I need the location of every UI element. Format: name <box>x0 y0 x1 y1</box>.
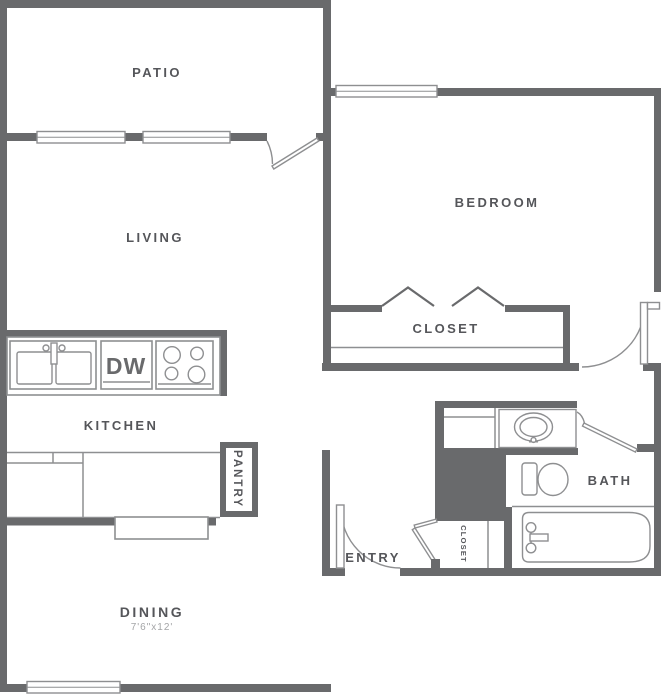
dining-window <box>27 682 120 694</box>
breakfast-bar <box>115 517 208 539</box>
dining-label: DINING <box>120 604 185 620</box>
closet-bifold-doors-icon <box>382 288 504 307</box>
floor-plan: DW <box>0 0 664 700</box>
living-label: LIVING <box>126 230 184 245</box>
kitchen-sink <box>10 341 96 389</box>
bedroom-window <box>336 86 437 98</box>
dishwasher: DW <box>101 341 152 389</box>
patio-label: PATIO <box>132 65 182 80</box>
bathtub <box>523 513 651 563</box>
bath-door-icon <box>577 412 637 452</box>
pantry-label: PANTRY <box>231 450 243 508</box>
kitchen-lower-counter <box>7 453 220 518</box>
patio-window-right <box>143 132 230 144</box>
floor-plan-drawing: DW <box>0 0 664 700</box>
entry-label: ENTRY <box>345 550 401 565</box>
stove <box>156 341 213 389</box>
patio-door-icon <box>267 138 319 169</box>
entry-closet-label: CLOSET <box>459 525 468 563</box>
kitchen-label: KITCHEN <box>84 418 159 433</box>
dining-dimensions: 7'6"x12' <box>131 622 174 633</box>
entry-closet-door-icon <box>412 519 440 568</box>
bedroom-label: BEDROOM <box>455 195 540 210</box>
vanity-sink <box>499 410 576 448</box>
dishwasher-label: DW <box>106 353 146 379</box>
bedroom-closet-walls <box>331 305 570 367</box>
bedroom-door-icon <box>582 303 660 368</box>
toilet <box>522 463 568 496</box>
patio-window-left <box>37 132 125 144</box>
bath-label: BATH <box>588 473 633 488</box>
bedroom-closet-label: CLOSET <box>412 321 479 336</box>
